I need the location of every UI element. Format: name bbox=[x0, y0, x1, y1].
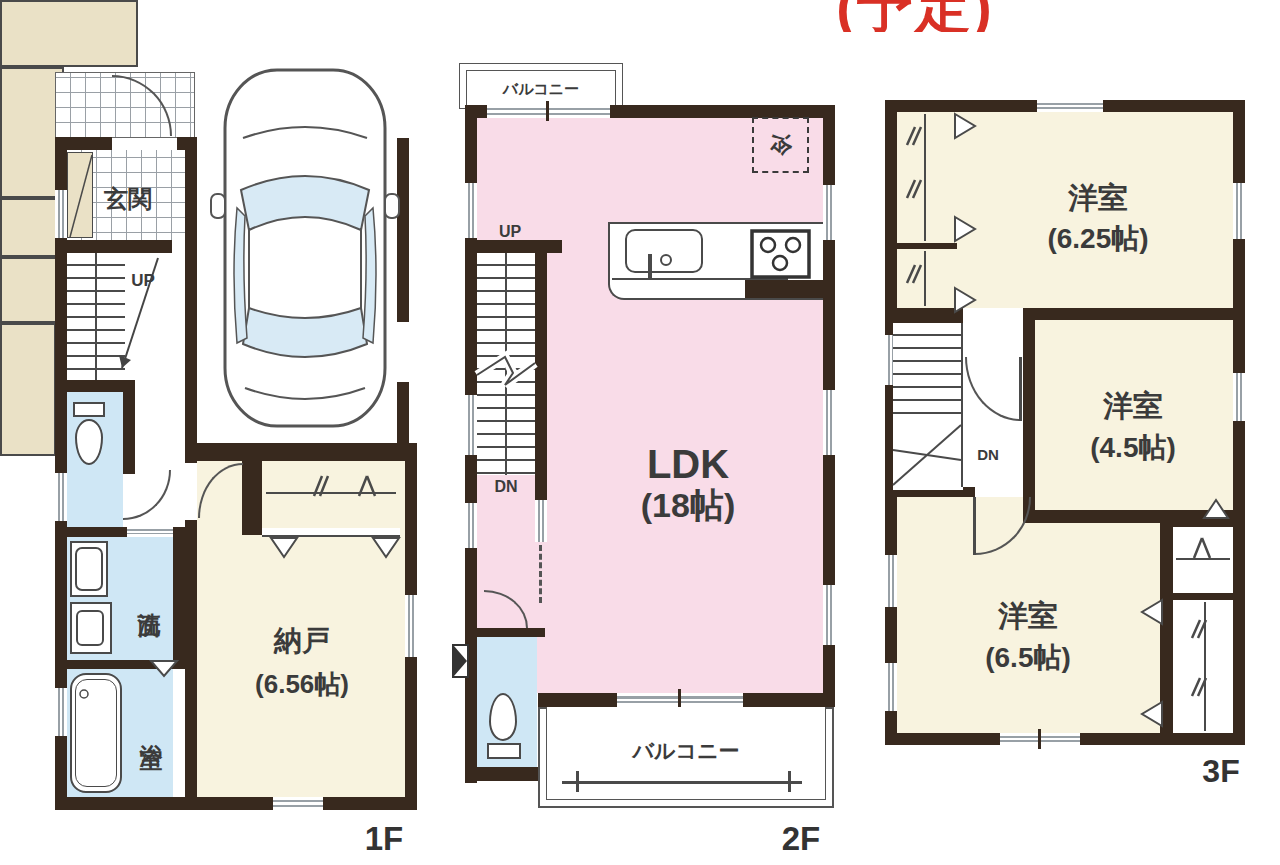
window bbox=[1037, 100, 1103, 112]
meter-box bbox=[452, 644, 469, 678]
hanger-mark-icon bbox=[903, 178, 927, 200]
balcony-rail-tick bbox=[788, 771, 791, 792]
washing-machine-drum-icon bbox=[75, 547, 103, 591]
folding-door-mark-icon bbox=[1138, 598, 1164, 626]
balcony-rail bbox=[562, 781, 802, 784]
western-room-625-label: 洋室 bbox=[1068, 181, 1128, 214]
door-panel bbox=[1019, 357, 1022, 421]
wall bbox=[242, 461, 262, 535]
balcony-bottom-label: バルコニー bbox=[633, 739, 740, 762]
floor-label-3f: 3F bbox=[1202, 753, 1239, 790]
western-room-625-size: (6.25帖) bbox=[1047, 224, 1148, 255]
folding-door-mark-icon bbox=[953, 215, 977, 243]
wall bbox=[893, 243, 957, 249]
wall bbox=[885, 733, 1000, 745]
door-panel bbox=[973, 497, 976, 555]
window bbox=[1233, 373, 1245, 421]
floor-1f: 玄関 UP bbox=[0, 0, 1280, 67]
window bbox=[465, 503, 477, 548]
dn-label-3f: DN bbox=[977, 447, 999, 464]
toilet-tank-icon bbox=[73, 402, 105, 417]
hanger-mark-icon bbox=[355, 474, 379, 498]
folding-door-mark-icon bbox=[270, 537, 300, 561]
window bbox=[465, 395, 477, 455]
ldk-size: (18帖) bbox=[641, 487, 735, 524]
wall bbox=[1103, 100, 1245, 112]
hanger-mark-icon bbox=[1190, 536, 1214, 560]
ldk-label: LDK bbox=[647, 442, 729, 486]
closet-shelf-edge bbox=[262, 528, 400, 537]
western-room-65-size: (6.5帖) bbox=[985, 643, 1071, 674]
storage-room-size: (6.56帖) bbox=[255, 670, 349, 699]
western-room-45-size: (4.5帖) bbox=[1090, 433, 1176, 464]
floor-label-1f: 1F bbox=[365, 820, 404, 858]
storage-room-label: 納戸 bbox=[274, 626, 330, 657]
wall-tick bbox=[1038, 729, 1041, 749]
car-icon bbox=[211, 58, 399, 438]
wall bbox=[743, 693, 835, 707]
window bbox=[823, 390, 835, 455]
stove-icon bbox=[750, 229, 812, 280]
wall bbox=[538, 693, 617, 707]
folding-door-mark-icon bbox=[953, 112, 977, 140]
folding-door-mark-icon bbox=[953, 286, 977, 314]
wall bbox=[1023, 308, 1245, 320]
window bbox=[823, 185, 835, 240]
wall-tick bbox=[546, 101, 549, 121]
window bbox=[465, 183, 477, 238]
wall bbox=[745, 280, 823, 298]
western-room-65-label: 洋室 bbox=[998, 599, 1058, 632]
dashed-edge bbox=[539, 545, 542, 603]
hanger-mark-icon bbox=[1188, 676, 1212, 698]
hanger-mark-icon bbox=[903, 263, 927, 285]
window bbox=[1233, 183, 1245, 239]
wall bbox=[1080, 733, 1245, 745]
wall bbox=[465, 767, 545, 781]
wall bbox=[1164, 593, 1245, 600]
up-label-1f: UP bbox=[131, 272, 155, 291]
wall bbox=[1023, 320, 1035, 510]
wall bbox=[885, 100, 1037, 112]
kitchen-faucet-icon bbox=[636, 244, 696, 294]
balcony-rail-tick bbox=[576, 771, 579, 792]
up-label-2f: UP bbox=[499, 223, 521, 241]
bath-drain-icon bbox=[76, 686, 96, 706]
western-room-625 bbox=[897, 112, 1233, 308]
vanity-bowl-icon bbox=[76, 610, 104, 646]
folding-door-mark-icon bbox=[1202, 498, 1230, 520]
toilet-tank-icon bbox=[487, 743, 521, 759]
washroom-label: 洗面 bbox=[135, 594, 166, 600]
stair-break-line-icon bbox=[475, 345, 545, 395]
western-room-45-label: 洋室 bbox=[1103, 389, 1163, 422]
bath-door-fold-icon bbox=[150, 660, 180, 680]
stair-edge-line bbox=[961, 323, 963, 487]
wall bbox=[477, 240, 562, 253]
hanger-mark-icon bbox=[1188, 618, 1212, 640]
hanger-mark-icon bbox=[903, 125, 927, 147]
wall bbox=[465, 628, 545, 637]
window bbox=[823, 585, 835, 645]
floorplan-canvas: (予定) 玄関 bbox=[0, 0, 1280, 865]
floor-label-2f: 2F bbox=[782, 820, 821, 858]
stair-winder-lines-icon bbox=[893, 420, 963, 490]
meter-box-flag-icon bbox=[454, 646, 467, 676]
bathroom-label: 浴室 bbox=[137, 725, 168, 731]
balcony-top-label: バルコニー bbox=[503, 81, 579, 98]
dn-label-2f: DN bbox=[494, 478, 517, 496]
refrigerator-label: 冷 bbox=[769, 134, 793, 156]
folding-door-mark-icon bbox=[372, 537, 402, 561]
window bbox=[885, 555, 897, 607]
window bbox=[885, 663, 897, 711]
sliding-door-mark bbox=[535, 500, 547, 542]
wall bbox=[885, 308, 963, 323]
hanger-mark-icon bbox=[310, 474, 332, 498]
folding-door-mark-icon bbox=[1138, 700, 1164, 728]
